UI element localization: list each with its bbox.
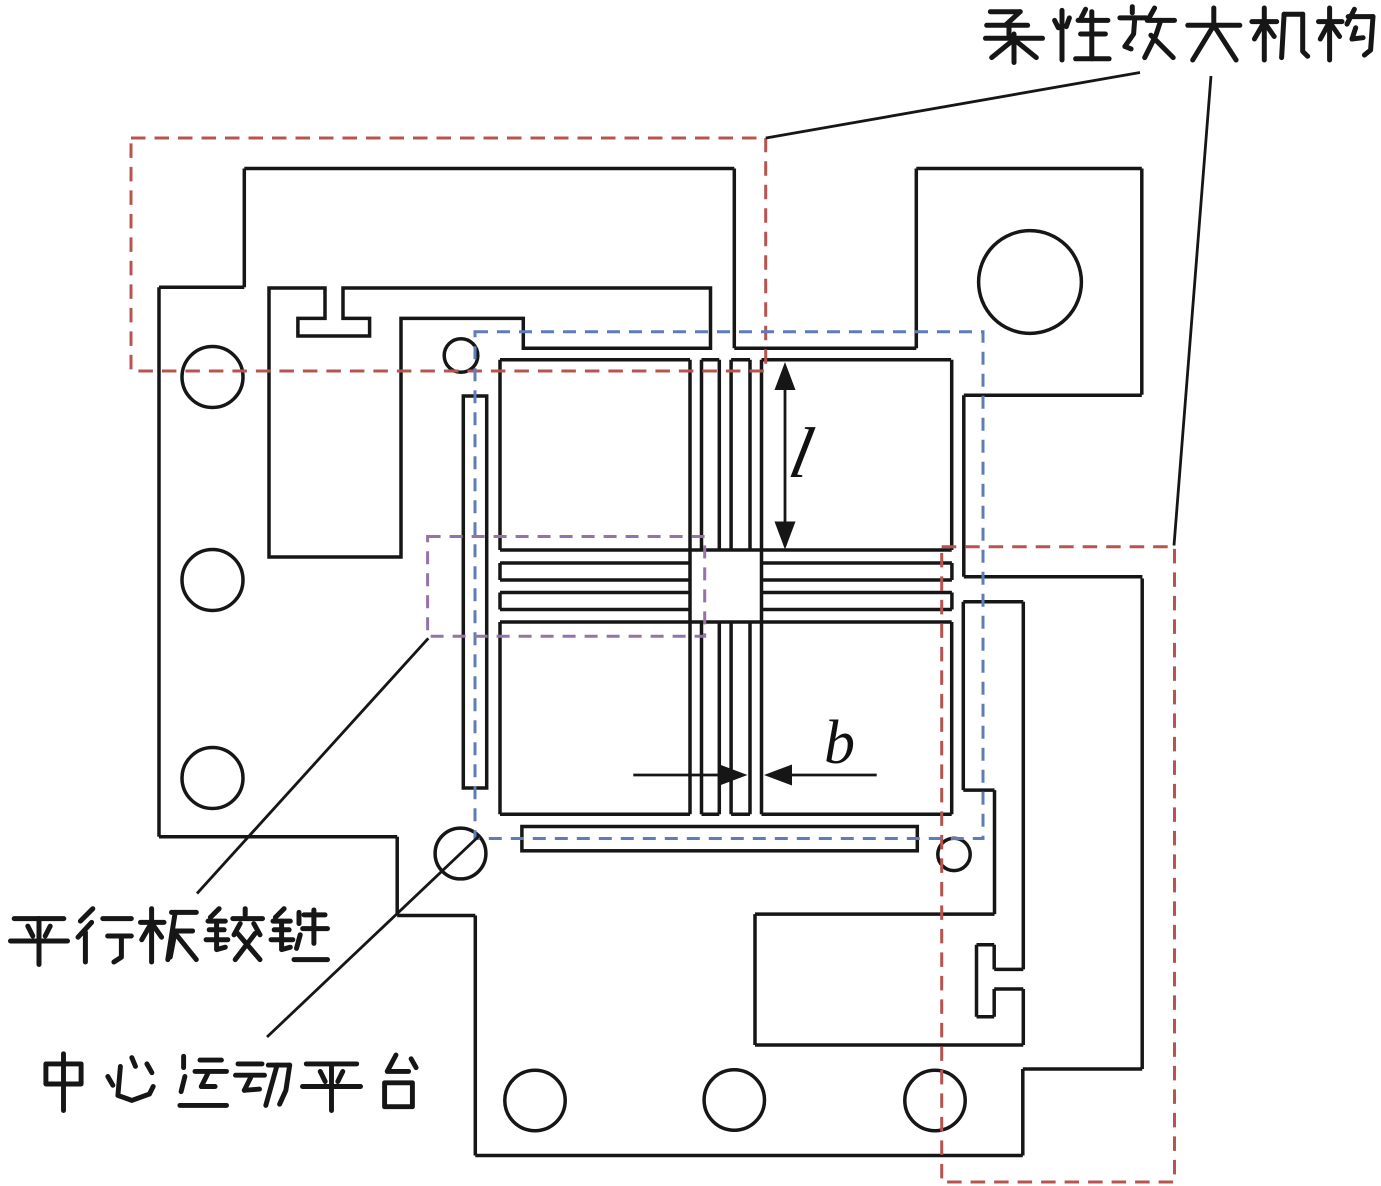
svg-text:b: b xyxy=(824,709,855,777)
